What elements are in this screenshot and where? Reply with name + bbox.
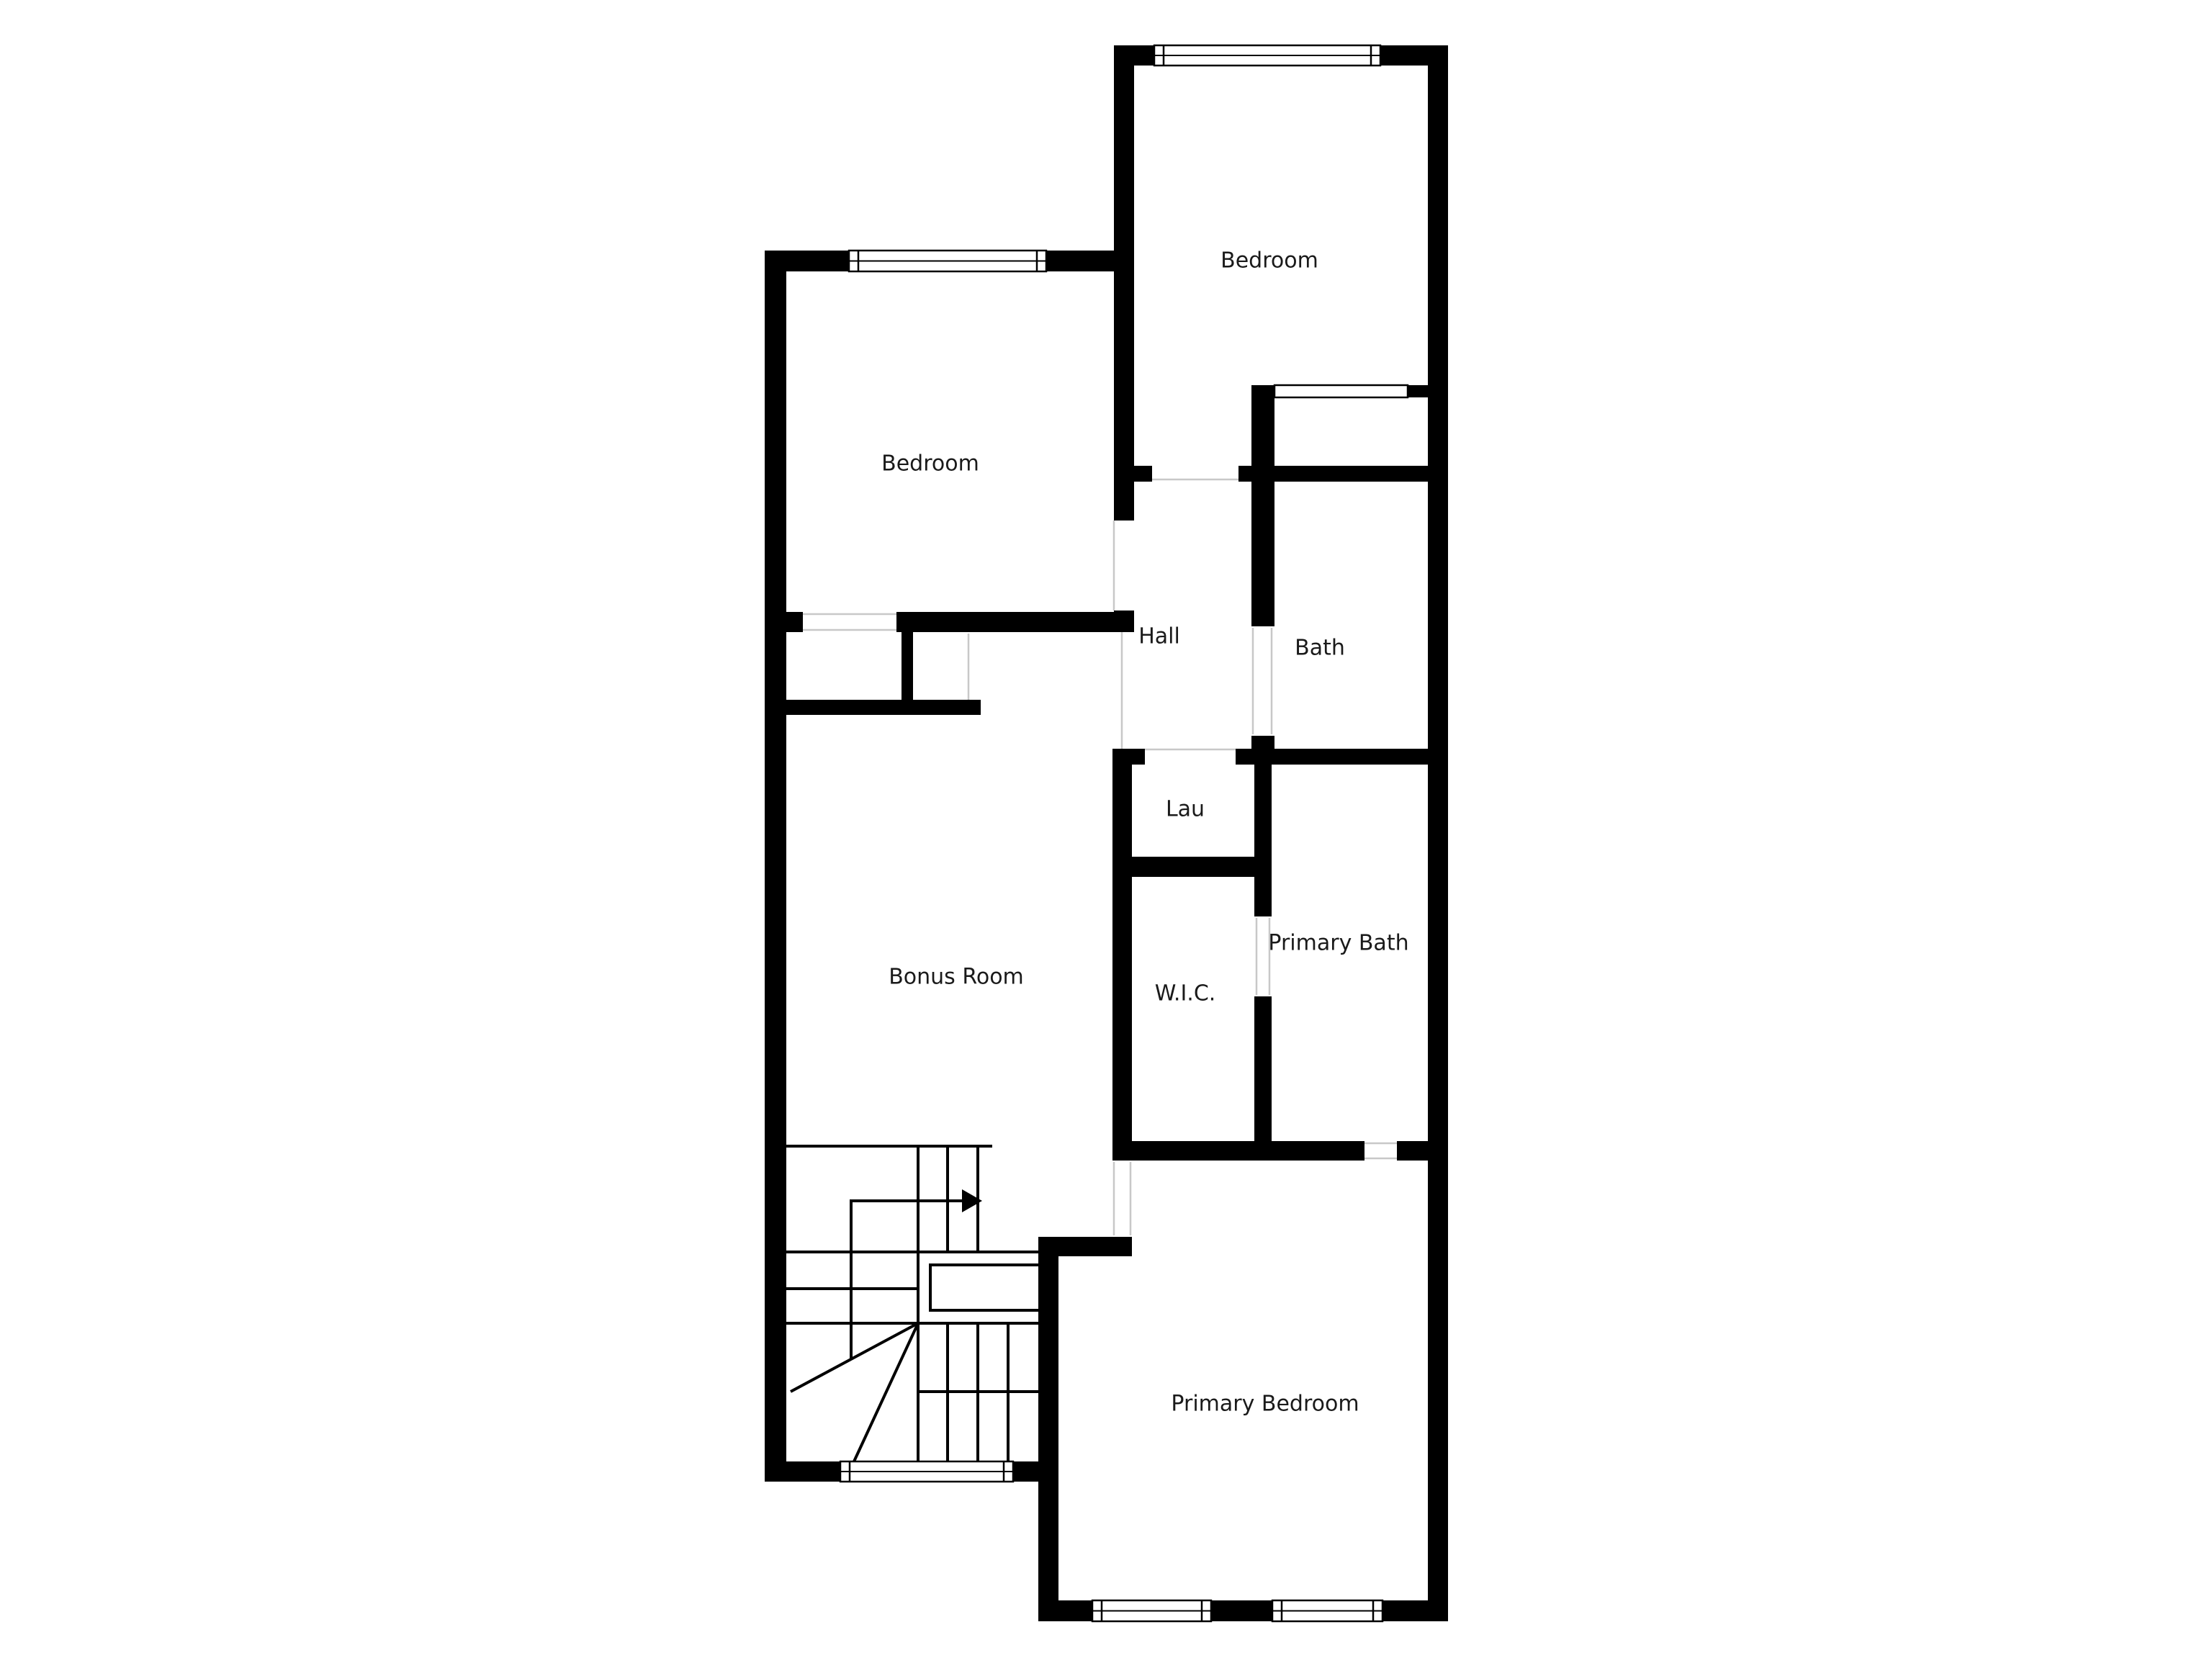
- closet-door-bedroom-top: [1274, 385, 1408, 397]
- wall-segment: [1211, 1600, 1272, 1621]
- wall-segment: [1254, 765, 1272, 916]
- wall-segment: [1251, 736, 1274, 749]
- room-label-bedroom-top: Bedroom: [1220, 248, 1318, 274]
- plan-background: [0, 0, 2212, 1658]
- wall-segment: [1114, 45, 1134, 521]
- window-bedroom-top: [1154, 45, 1380, 66]
- window-frame: [1274, 385, 1408, 397]
- wall-segment: [1058, 1600, 1092, 1621]
- window-primary-bedroom-1: [1092, 1600, 1211, 1621]
- wall-segment: [1382, 1600, 1448, 1621]
- wall-segment: [765, 1461, 840, 1482]
- floor-plan-page: BedroomBedroomHallBathLauBonus RoomW.I.C…: [0, 0, 2212, 1658]
- wall-segment: [1251, 482, 1274, 626]
- window-bedroom-left: [849, 251, 1046, 271]
- wall-segment: [786, 612, 803, 632]
- wall-segment: [786, 700, 981, 715]
- wall-segment: [1134, 466, 1152, 482]
- wall-segment: [1428, 45, 1448, 1621]
- wall-segment: [1038, 1237, 1058, 1621]
- wall-segment: [765, 251, 786, 1482]
- floor-plan-svg: BedroomBedroomHallBathLauBonus RoomW.I.C…: [0, 0, 2212, 1658]
- room-label-bath: Bath: [1295, 636, 1345, 661]
- wall-segment: [1254, 996, 1272, 1161]
- room-label-primary-bedroom: Primary Bedroom: [1171, 1392, 1359, 1417]
- wall-segment: [1408, 385, 1428, 397]
- wall-segment: [896, 612, 1132, 632]
- room-label-bedroom-left: Bedroom: [881, 451, 979, 477]
- room-label-wic: W.I.C.: [1155, 981, 1216, 1006]
- window-stairs: [840, 1461, 1013, 1482]
- wall-segment: [1112, 1141, 1364, 1161]
- wall-segment: [1236, 749, 1448, 765]
- wall-segment: [1112, 749, 1132, 1157]
- wall-segment: [1013, 1461, 1058, 1482]
- wall-segment: [1251, 385, 1274, 482]
- room-label-lau: Lau: [1166, 797, 1205, 822]
- wall-segment: [1112, 857, 1272, 877]
- room-label-primary-bath: Primary Bath: [1268, 931, 1408, 956]
- room-label-hall: Hall: [1138, 624, 1180, 649]
- wall-segment: [1397, 1141, 1448, 1161]
- wall-segment: [902, 632, 913, 711]
- window-primary-bedroom-2: [1272, 1600, 1382, 1621]
- room-label-bonus-room: Bonus Room: [889, 965, 1024, 990]
